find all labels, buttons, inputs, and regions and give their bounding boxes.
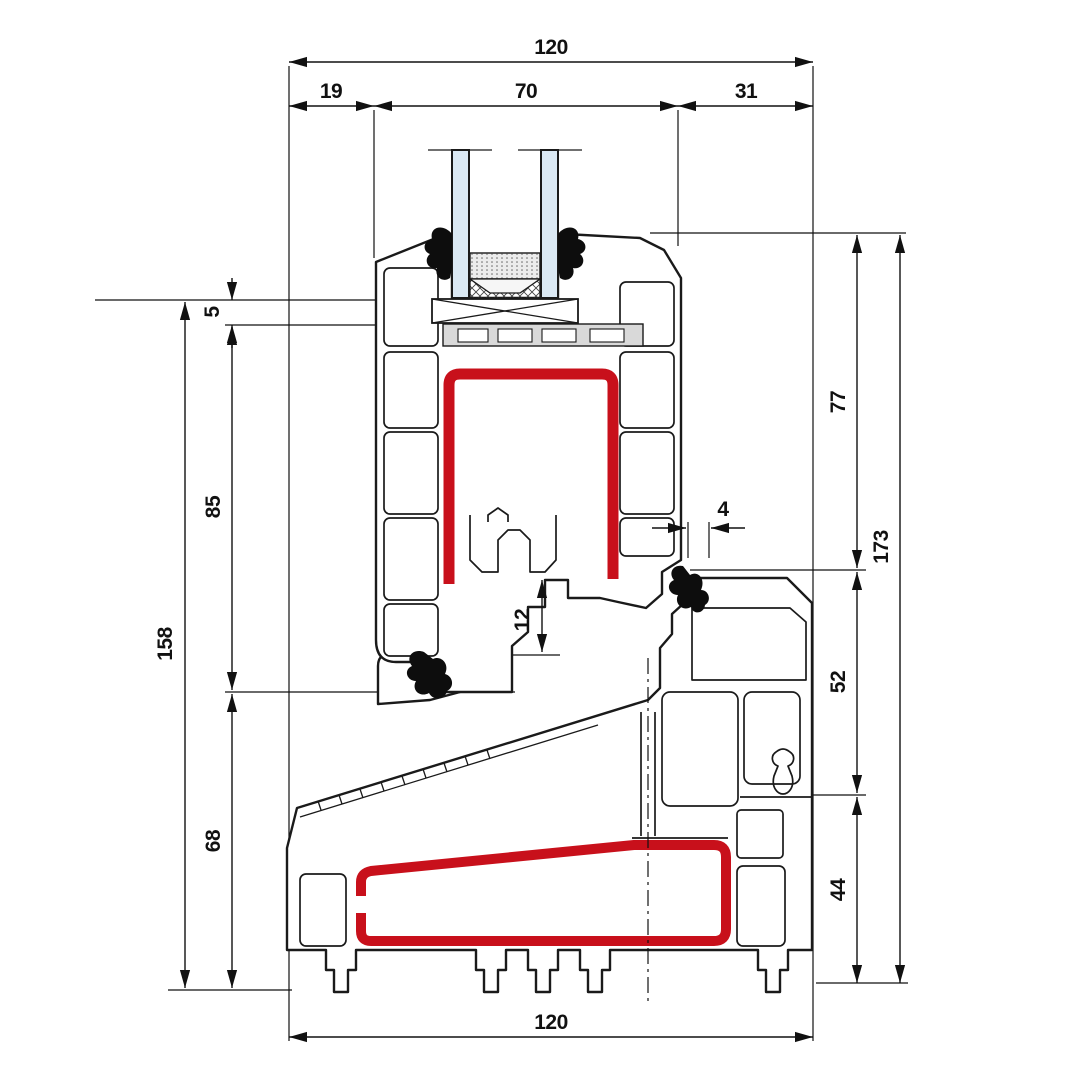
- dim-right-column: 77 52 44 173: [827, 235, 900, 983]
- dim-label-top-left: 19: [320, 80, 342, 103]
- glazing-bridge: [443, 324, 643, 346]
- glass-pane-outer: [452, 150, 469, 298]
- dim-label-sash-right: 77: [827, 391, 850, 413]
- dim-label-left-total: 158: [154, 626, 177, 660]
- dim-label-bottom-total: 120: [534, 1011, 568, 1034]
- dim-label-gasket-width: 4: [717, 498, 729, 521]
- glass-pane-inner: [541, 150, 558, 298]
- dim-label-glass-seat: 5: [201, 306, 224, 318]
- dim-label-top-total: 120: [534, 36, 568, 59]
- dim-label-sill-right: 44: [827, 878, 850, 901]
- dim-top-total: 120: [289, 36, 813, 62]
- dim-label-overlap: 12: [511, 609, 534, 631]
- dim-left-column: 5 85 68 158: [154, 278, 232, 988]
- window-profile-section-svg: 120 19 70 31 120 5 85 68 158 77: [0, 0, 1080, 1080]
- dim-bottom-total: 120: [289, 1011, 813, 1037]
- dim-label-right-total: 173: [870, 530, 893, 564]
- technical-drawing-canvas: 120 19 70 31 120 5 85 68 158 77: [0, 0, 1080, 1080]
- setting-block: [432, 299, 578, 323]
- dim-label-top-right: 31: [735, 80, 758, 103]
- dim-label-sash-height: 85: [202, 495, 225, 518]
- dim-label-top-center: 70: [515, 80, 537, 103]
- dim-label-sill-left: 68: [202, 829, 225, 852]
- dim-top-segments: 19 70 31: [289, 80, 813, 106]
- dim-label-frame-mid: 52: [827, 671, 850, 693]
